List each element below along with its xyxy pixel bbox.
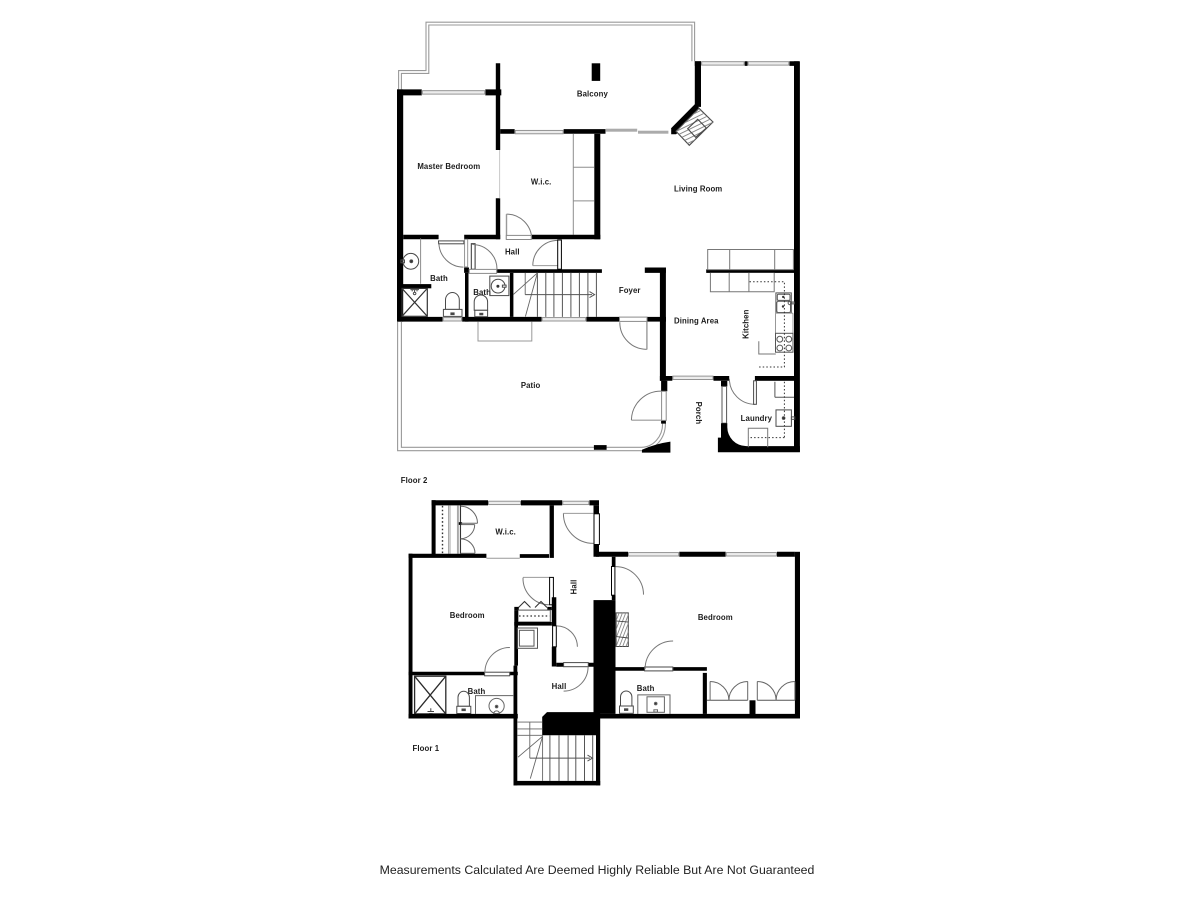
svg-text:Hall: Hall [552, 682, 567, 691]
svg-text:Bedroom: Bedroom [698, 613, 733, 622]
svg-text:Bath: Bath [430, 274, 448, 283]
svg-text:Bedroom: Bedroom [450, 611, 485, 620]
svg-text:Floor 1: Floor 1 [413, 744, 440, 753]
svg-text:Bath: Bath [637, 684, 655, 693]
svg-text:Master Bedroom: Master Bedroom [417, 162, 480, 171]
svg-text:Foyer: Foyer [619, 286, 641, 295]
svg-text:Floor 2: Floor 2 [401, 476, 428, 485]
svg-text:Laundry: Laundry [741, 414, 773, 423]
svg-text:Bath: Bath [468, 687, 486, 696]
svg-text:Dining Area: Dining Area [674, 316, 719, 325]
svg-text:Patio: Patio [521, 381, 541, 390]
svg-text:Porch: Porch [694, 402, 703, 425]
svg-text:Hall: Hall [505, 247, 520, 256]
svg-text:W.i.c.: W.i.c. [531, 177, 552, 186]
svg-text:Kitchen: Kitchen [741, 309, 750, 338]
svg-text:Living Room: Living Room [674, 185, 722, 194]
svg-text:Balcony: Balcony [577, 90, 609, 99]
svg-text:Hall: Hall [569, 580, 578, 595]
svg-text:W.i.c.: W.i.c. [495, 528, 516, 537]
svg-text:Measurements Calculated Are De: Measurements Calculated Are Deemed Highl… [380, 863, 815, 877]
